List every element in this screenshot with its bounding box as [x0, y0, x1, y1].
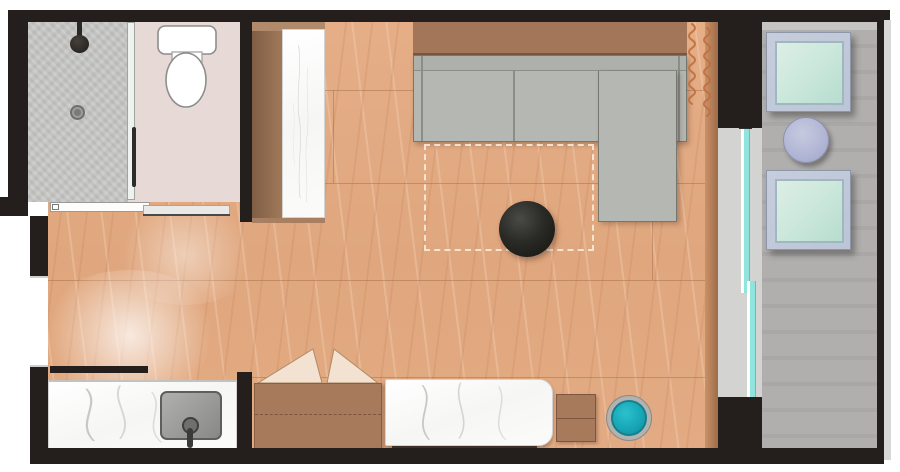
console-behind-sofa: [413, 22, 687, 55]
floor-plan: [0, 0, 900, 472]
shower-door-handle: [132, 127, 136, 187]
balcony-floor-edge: [762, 22, 877, 30]
wall-balcony-corner: [718, 397, 762, 448]
toilet: [152, 22, 222, 114]
cabinet-bottom-band: [252, 218, 325, 223]
floor-drain-center: [74, 109, 81, 116]
storage-cabinet: [254, 383, 382, 449]
wardrobe: [252, 31, 282, 222]
chaise-lounge: [598, 71, 677, 222]
bifold-cabinet-doors-open: [252, 346, 384, 384]
wall-kitchen-partition: [50, 366, 148, 373]
teal-stool: [611, 400, 647, 436]
wall-bathroom-left: [8, 10, 28, 216]
balcony-round-table: [783, 117, 829, 163]
door-track-line: [143, 214, 230, 216]
sofa-arm-line: [678, 56, 680, 141]
sofa-cushion-divider: [513, 71, 515, 141]
wall-bathroom-corner: [0, 197, 28, 216]
wall-left-mid: [30, 216, 48, 276]
curtain-icon: [686, 22, 716, 124]
wall-bathroom-divider: [240, 10, 252, 222]
shower-head-icon: [70, 35, 89, 53]
tall-marble-counter: [282, 29, 325, 218]
drawer-unit: [556, 394, 596, 442]
sofa-backrest: [414, 56, 686, 71]
bathroom-sliding-door-panel: [50, 202, 150, 212]
wall-bottom: [30, 448, 884, 464]
bathroom-door-handle: [52, 204, 59, 210]
wall-balcony-column: [718, 10, 762, 128]
faucet-stem: [187, 428, 193, 448]
marble-dining-table: [385, 379, 553, 446]
sliding-glass-door-panel: [741, 129, 750, 293]
sliding-glass-door-panel: [747, 281, 756, 399]
wall-right: [877, 20, 884, 460]
wall-kitchen-stub: [237, 372, 252, 448]
balcony-square-table: [766, 32, 851, 112]
wall-right-outer-trim: [884, 20, 891, 460]
round-pouf: [499, 201, 555, 257]
floor-light-glow: [110, 205, 260, 305]
sofa-arm-line: [421, 56, 423, 141]
floor-seam: [333, 90, 334, 183]
balcony-square-table: [766, 170, 851, 250]
entry-door-opening: [30, 276, 48, 367]
